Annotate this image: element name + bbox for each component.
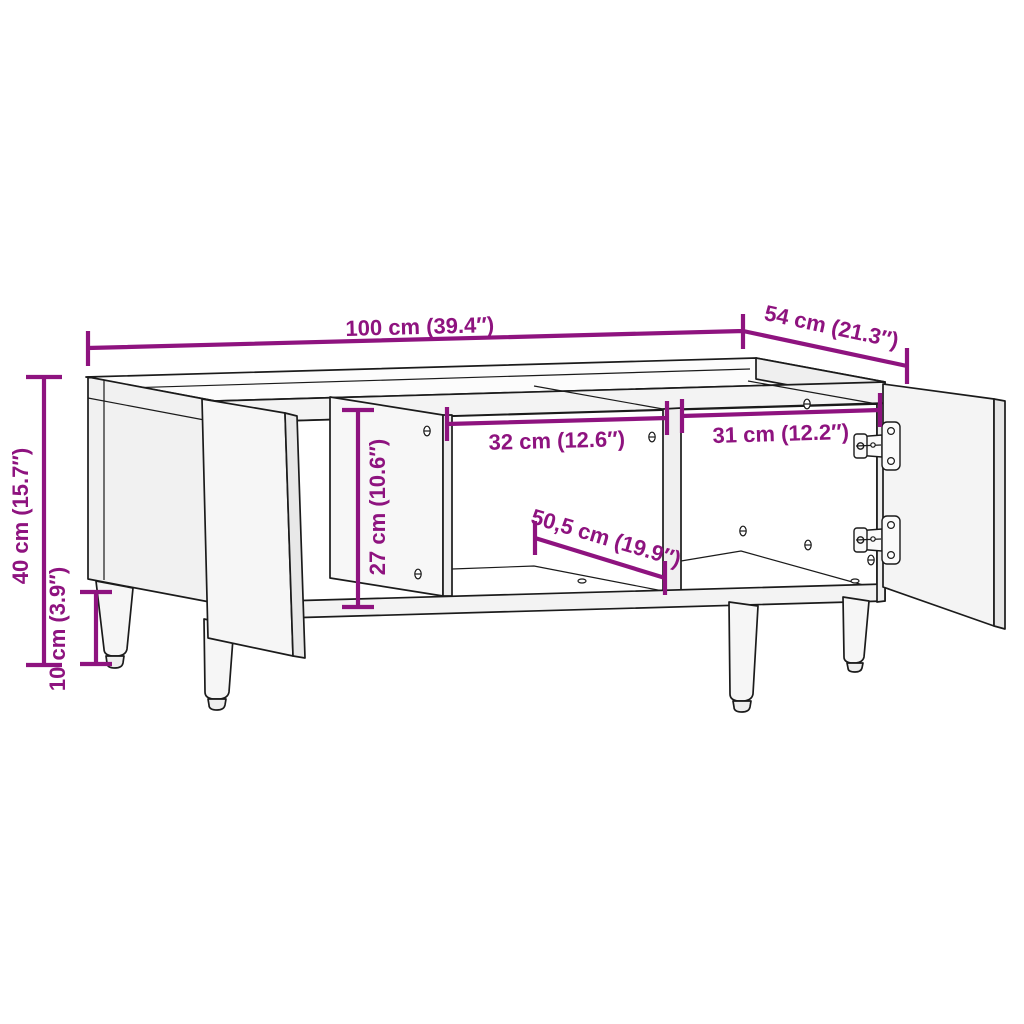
floor-bolt-left bbox=[578, 579, 586, 583]
dimension-label: 54 cm (21.3″) bbox=[762, 300, 901, 353]
screw-icon bbox=[424, 426, 430, 436]
right-door-open bbox=[883, 384, 1005, 629]
leg-front-right bbox=[729, 602, 758, 712]
dimension-label: 10 cm (3.9″) bbox=[45, 567, 70, 691]
left-door-face bbox=[202, 399, 293, 656]
screw-icon bbox=[804, 399, 810, 409]
dimension-label: 27 cm (10.6″) bbox=[365, 439, 390, 576]
divider-front-edge bbox=[443, 415, 452, 596]
right-door-edge bbox=[994, 399, 1005, 629]
screw-icon bbox=[740, 526, 746, 536]
screw-icon bbox=[868, 555, 874, 565]
screw-icon bbox=[649, 432, 655, 442]
dimension-label: 40 cm (15.7″) bbox=[8, 448, 33, 585]
dimension-width-top: 100 cm (39.4″) bbox=[88, 312, 743, 366]
leg-foot bbox=[733, 701, 751, 712]
dimension-label: 100 cm (39.4″) bbox=[345, 312, 494, 341]
leg-foot bbox=[208, 699, 226, 710]
right-door-face bbox=[883, 384, 994, 626]
dimension-label: 31 cm (12.2″) bbox=[712, 419, 849, 448]
left-side-panel bbox=[88, 377, 215, 603]
screw-icon bbox=[415, 569, 421, 579]
screw-icon bbox=[805, 540, 811, 550]
dimension-label: 32 cm (12.6″) bbox=[488, 426, 625, 455]
left-panel-face bbox=[88, 377, 215, 603]
leg-back-right bbox=[843, 597, 869, 672]
left-door-open bbox=[202, 399, 305, 658]
cabinet-dimension-diagram: 100 cm (39.4″) 54 cm (21.3″) 40 cm (15.7… bbox=[0, 0, 1024, 1024]
floor-bolt-right bbox=[851, 579, 859, 583]
leg-foot bbox=[847, 663, 863, 672]
